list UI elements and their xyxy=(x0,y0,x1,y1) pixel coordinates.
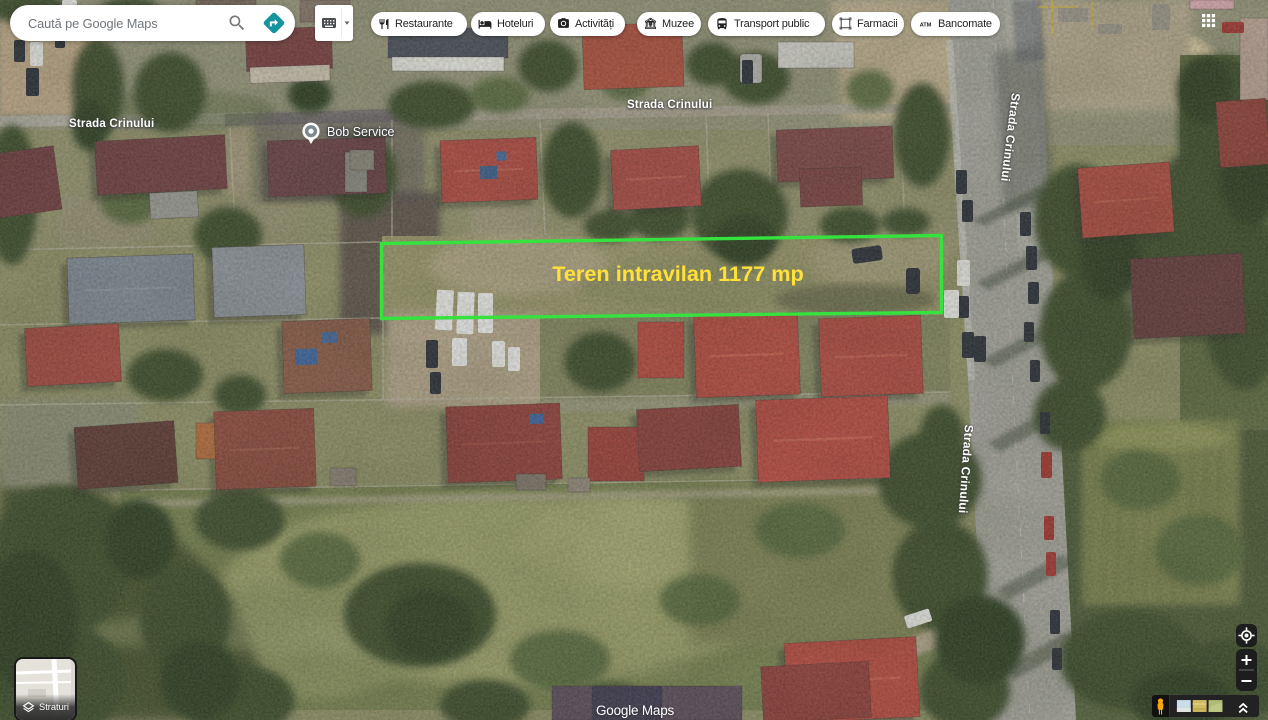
svg-text:Teren intravilan 1177 mp: Teren intravilan 1177 mp xyxy=(552,261,804,286)
svg-text:M: M xyxy=(649,22,653,28)
svg-text:ATM: ATM xyxy=(920,22,932,28)
